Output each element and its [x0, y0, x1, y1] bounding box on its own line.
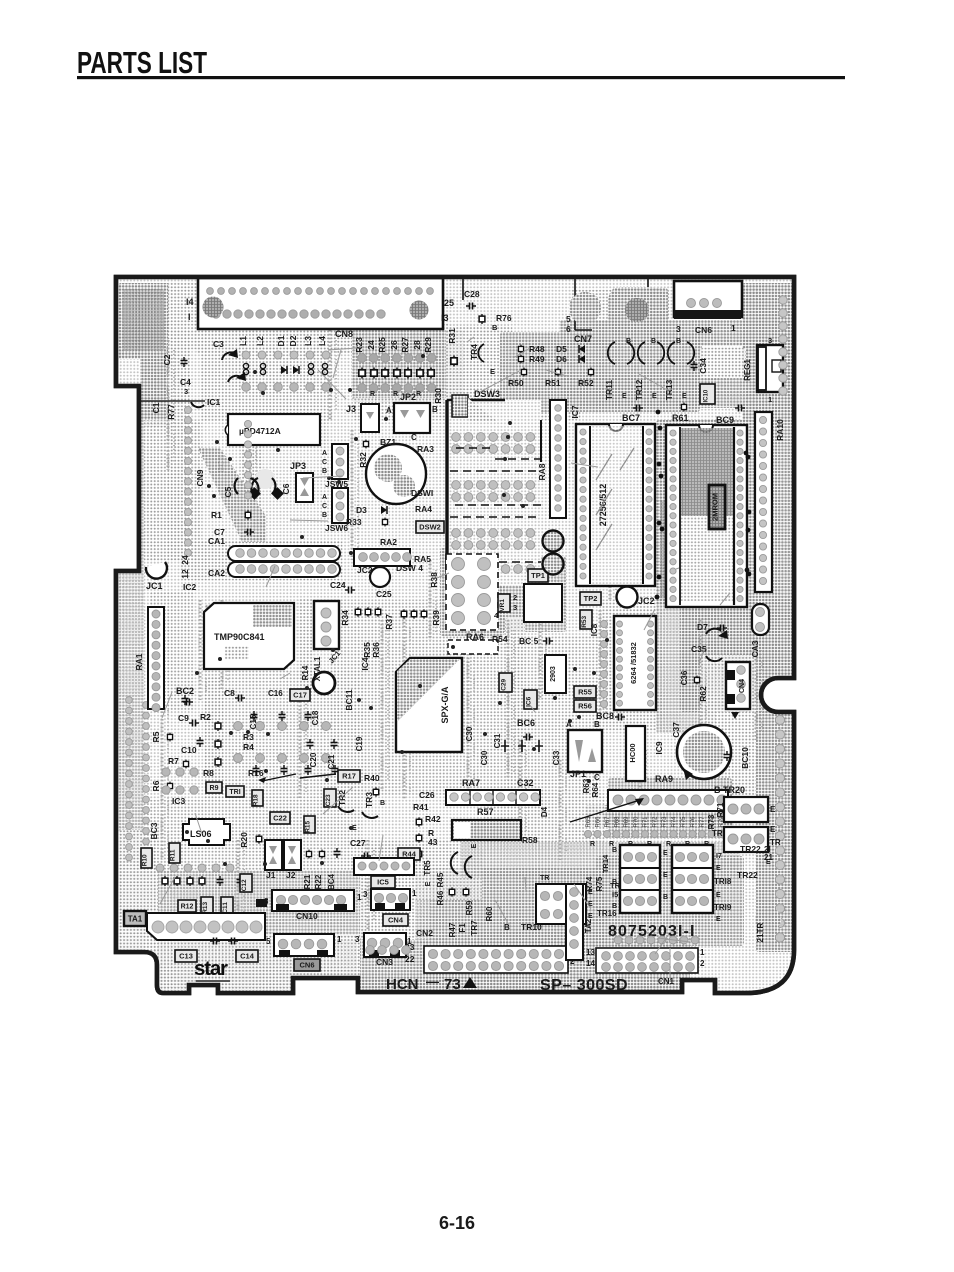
svg-text:DSW2: DSW2: [419, 523, 441, 532]
svg-text:R54: R54: [492, 634, 508, 644]
svg-text:TR22: TR22: [740, 844, 761, 854]
svg-text:RA1: RA1: [134, 653, 144, 670]
svg-text:R41: R41: [413, 802, 429, 812]
svg-text:3: 3: [513, 603, 517, 612]
svg-text:TRI9: TRI9: [714, 903, 732, 912]
svg-text:C12: C12: [241, 879, 248, 891]
svg-text:2MROM: 2MROM: [711, 493, 720, 521]
svg-text:TR3: TR3: [364, 792, 374, 808]
svg-text:2: 2: [513, 593, 517, 602]
svg-text:R70: R70: [634, 816, 640, 828]
svg-text:TR7: TR7: [470, 920, 479, 936]
svg-text:C21: C21: [327, 754, 336, 769]
svg-text:RA4: RA4: [415, 504, 432, 514]
svg-text:21: 21: [756, 933, 765, 942]
svg-text:J2: J2: [286, 870, 296, 880]
svg-text:B: B: [676, 338, 681, 345]
svg-text:D4: D4: [540, 806, 549, 817]
svg-text:L2: L2: [255, 336, 265, 346]
svg-text:E: E: [471, 843, 478, 848]
svg-text:22: 22: [405, 954, 415, 964]
svg-text:R46: R46: [436, 890, 445, 905]
svg-text:BC11: BC11: [344, 689, 354, 711]
svg-text:JP1: JP1: [570, 769, 586, 779]
svg-text:E: E: [652, 393, 657, 400]
svg-text:R25: R25: [377, 337, 387, 353]
svg-text:C: C: [594, 773, 600, 782]
svg-text:R21: R21: [303, 874, 312, 889]
svg-text:C34: C34: [698, 358, 708, 374]
svg-text:C: C: [322, 459, 327, 466]
svg-text:6-16: 6-16: [439, 1213, 475, 1233]
svg-text:J3: J3: [346, 404, 356, 414]
svg-text:JSW6: JSW6: [325, 523, 348, 533]
svg-text:R: R: [393, 391, 398, 398]
svg-text:2: 2: [700, 959, 705, 968]
svg-text:R39: R39: [431, 610, 441, 626]
svg-text:R75: R75: [681, 816, 687, 828]
svg-text:26: 26: [389, 340, 399, 350]
svg-text:C14: C14: [240, 952, 255, 961]
svg-text:TR2: TR2: [337, 790, 347, 806]
svg-text:E: E: [716, 892, 721, 899]
svg-text:E: E: [663, 850, 668, 857]
svg-text:R29: R29: [423, 337, 433, 353]
svg-text:R33: R33: [346, 517, 362, 527]
svg-text:JP2: JP2: [400, 392, 416, 402]
svg-text:R8: R8: [203, 768, 214, 778]
svg-text:PARTS LIST: PARTS LIST: [77, 45, 207, 80]
svg-text:R69: R69: [624, 816, 630, 828]
svg-text:TR22: TR22: [737, 870, 758, 880]
svg-text:B: B: [380, 800, 385, 807]
svg-text:C23: C23: [325, 794, 332, 806]
svg-text:C1: C1: [151, 402, 161, 413]
svg-text:R57: R57: [477, 807, 494, 817]
svg-text:2903: 2903: [550, 666, 557, 682]
svg-text:RA2: RA2: [380, 537, 397, 547]
svg-text:E: E: [770, 825, 776, 834]
svg-text:1: 1: [412, 889, 417, 898]
svg-text:R66: R66: [596, 816, 602, 828]
svg-text:IC10: IC10: [704, 389, 710, 402]
svg-text:1: 1: [357, 893, 362, 902]
svg-text:R23: R23: [354, 337, 364, 353]
svg-text:A: A: [386, 406, 392, 415]
svg-text:1: 1: [731, 323, 736, 333]
svg-text:R32: R32: [358, 452, 368, 468]
svg-text:B: B: [322, 468, 327, 475]
svg-text:C4: C4: [180, 377, 191, 387]
svg-text:R64: R64: [591, 782, 600, 797]
svg-text:D1: D1: [276, 335, 286, 346]
svg-text:E: E: [588, 901, 593, 908]
svg-text:TMP90C841: TMP90C841: [214, 632, 265, 642]
svg-text:CN7: CN7: [574, 334, 592, 344]
svg-text:R31: R31: [447, 328, 457, 344]
svg-text:C16: C16: [268, 689, 283, 698]
svg-text:R14: R14: [301, 665, 310, 680]
svg-text:C2: C2: [162, 354, 172, 365]
svg-text:R6: R6: [151, 780, 161, 791]
svg-text:R: R: [590, 841, 595, 848]
svg-text:JP3: JP3: [290, 461, 306, 471]
svg-text:E: E: [622, 393, 627, 400]
svg-text:B: B: [651, 338, 656, 345]
svg-text:C20: C20: [309, 752, 318, 767]
svg-text:B: B: [626, 338, 631, 345]
svg-text:3: 3: [676, 324, 681, 334]
svg-text:BC9: BC9: [716, 415, 734, 425]
svg-text:B: B: [322, 512, 327, 519]
svg-text:R65: R65: [586, 816, 592, 828]
svg-text:RA10: RA10: [775, 419, 785, 441]
svg-text:E: E: [716, 865, 721, 872]
svg-text:R37: R37: [384, 614, 394, 630]
svg-text:R7: R7: [168, 756, 179, 766]
svg-text:3: 3: [768, 336, 772, 345]
svg-text:R34: R34: [340, 610, 350, 626]
svg-text:D5: D5: [556, 344, 567, 354]
svg-text:E: E: [682, 393, 687, 400]
svg-text:B: B: [612, 847, 617, 854]
svg-text:R: R: [666, 841, 671, 848]
svg-text:R71: R71: [643, 816, 649, 828]
svg-text:R67: R67: [605, 816, 611, 828]
svg-text:14: 14: [586, 959, 595, 968]
svg-text:3: 3: [363, 890, 368, 899]
svg-text:CN2: CN2: [416, 928, 433, 938]
svg-text:R1: R1: [211, 510, 222, 520]
svg-text:R: R: [416, 391, 421, 398]
svg-text:R: R: [370, 391, 375, 398]
svg-text:SPX-G/A: SPX-G/A: [440, 686, 450, 724]
svg-text:R38: R38: [429, 572, 439, 588]
svg-text:CN6: CN6: [299, 961, 314, 970]
svg-text:TR5: TR5: [423, 860, 432, 876]
svg-text:C30: C30: [480, 750, 489, 765]
svg-text:IC2: IC2: [183, 582, 197, 592]
svg-text:R5: R5: [151, 731, 161, 742]
svg-text:I7: I7: [716, 853, 722, 860]
svg-text:BC7: BC7: [622, 413, 640, 423]
svg-text:R76: R76: [691, 816, 697, 828]
svg-text:43: 43: [428, 837, 438, 847]
svg-text:C: C: [322, 503, 327, 510]
svg-text:6: 6: [566, 324, 571, 334]
svg-text:TRI: TRI: [229, 789, 240, 796]
svg-text:R58: R58: [522, 835, 538, 845]
svg-text:C36: C36: [680, 670, 689, 685]
svg-text:1: 1: [768, 395, 772, 404]
svg-text:IC1: IC1: [207, 397, 221, 407]
svg-text:R45: R45: [436, 872, 445, 887]
svg-text:D6: D6: [556, 354, 567, 364]
svg-text:R59: R59: [465, 900, 474, 915]
svg-text:R73: R73: [662, 816, 668, 828]
svg-text:RA9: RA9: [655, 774, 673, 784]
svg-text:TR: TR: [756, 922, 765, 933]
svg-text:R30: R30: [433, 388, 443, 404]
svg-text:R2: R2: [200, 712, 211, 722]
svg-text:IC4: IC4: [360, 657, 370, 671]
svg-text:L1: L1: [238, 336, 248, 346]
svg-text:TR12: TR12: [634, 379, 644, 400]
svg-text:C25: C25: [376, 589, 392, 599]
svg-text:CA2: CA2: [208, 568, 225, 578]
svg-text:CN10: CN10: [296, 911, 318, 921]
svg-text:E: E: [770, 805, 776, 814]
svg-text:C18: C18: [311, 710, 320, 725]
svg-text:R72: R72: [653, 816, 659, 828]
svg-text:C3: C3: [213, 339, 224, 349]
svg-text:C10: C10: [181, 745, 197, 755]
svg-text:C17: C17: [293, 691, 307, 700]
svg-text:R18: R18: [253, 794, 260, 806]
svg-text:B: B: [432, 405, 438, 414]
svg-text:R73: R73: [707, 814, 716, 829]
svg-text:TR11: TR11: [604, 380, 614, 401]
svg-text:B TR20: B TR20: [714, 785, 745, 795]
svg-text:E: E: [663, 872, 668, 879]
svg-text:—: —: [426, 974, 439, 989]
svg-text:BZ1: BZ1: [380, 437, 396, 447]
svg-text:R76: R76: [496, 313, 512, 323]
svg-text:I: I: [188, 312, 191, 322]
svg-text:R75: R75: [595, 876, 604, 891]
svg-text:6264 /51832: 6264 /51832: [629, 642, 638, 684]
svg-text:RA7: RA7: [462, 778, 480, 788]
svg-text:C13: C13: [179, 952, 193, 961]
svg-text:CN4: CN4: [739, 679, 746, 693]
svg-text:BC6: BC6: [517, 718, 535, 728]
svg-text:R77: R77: [166, 404, 176, 420]
svg-text:D3: D3: [356, 505, 367, 515]
svg-text:27256/512: 27256/512: [598, 484, 608, 527]
svg-text:JC1: JC1: [146, 581, 163, 591]
svg-text:IC3: IC3: [172, 796, 186, 806]
svg-text:C26: C26: [419, 790, 435, 800]
svg-text:RA3: RA3: [417, 444, 434, 454]
svg-text:star: star: [194, 957, 228, 980]
svg-text:C31: C31: [493, 733, 502, 748]
svg-text:TR: TR: [610, 881, 621, 890]
svg-text:R60: R60: [485, 906, 494, 921]
svg-text:IC6: IC6: [526, 696, 533, 707]
svg-text:CN4: CN4: [388, 916, 404, 925]
svg-text:TR: TR: [770, 838, 781, 847]
svg-text:R68: R68: [615, 816, 621, 828]
svg-text:R17: R17: [342, 772, 356, 781]
svg-text:TP2: TP2: [584, 594, 598, 603]
svg-text:XTAL1: XTAL1: [313, 656, 322, 681]
svg-text:C15: C15: [249, 714, 258, 729]
svg-text:I5: I5: [612, 890, 618, 899]
svg-text:E: E: [490, 367, 495, 376]
svg-text:L4: L4: [317, 336, 327, 346]
svg-text:R56: R56: [578, 702, 592, 711]
svg-text:R9: R9: [210, 785, 219, 792]
svg-text:JC2: JC2: [357, 565, 373, 575]
svg-text:R55: R55: [578, 688, 592, 697]
svg-text:CN1: CN1: [658, 977, 675, 986]
svg-text:R47: R47: [448, 922, 457, 937]
svg-text:3: 3: [355, 935, 360, 944]
svg-text:C30: C30: [465, 726, 474, 741]
svg-text:3: 3: [184, 387, 188, 396]
svg-text:C37: C37: [671, 722, 681, 738]
svg-text:C: C: [411, 433, 417, 442]
svg-text:D2: D2: [288, 335, 298, 346]
svg-text:BC2: BC2: [176, 686, 194, 696]
svg-text:TR: TR: [540, 875, 549, 882]
svg-text:C19: C19: [355, 736, 364, 751]
svg-text:R36: R36: [371, 642, 381, 658]
svg-text:R42: R42: [425, 814, 441, 824]
svg-text:A: A: [322, 450, 327, 457]
svg-text:13: 13: [586, 948, 595, 957]
svg-text:5: 5: [566, 314, 571, 324]
svg-text:R50: R50: [508, 378, 524, 388]
svg-text:IC5: IC5: [377, 878, 389, 887]
svg-text:R48: R48: [529, 344, 545, 354]
svg-text:BC10: BC10: [740, 747, 750, 769]
svg-text:R11: R11: [170, 849, 177, 861]
svg-text:TR13: TR13: [664, 379, 674, 400]
svg-text:TRI8: TRI8: [714, 877, 732, 886]
svg-text:C33: C33: [552, 750, 561, 765]
svg-text:E: E: [766, 859, 771, 866]
svg-text:R12: R12: [181, 904, 194, 911]
svg-text:R22: R22: [314, 874, 323, 889]
svg-text:CN9: CN9: [195, 469, 205, 486]
svg-text:IC7: IC7: [570, 405, 580, 419]
svg-text:IC8: IC8: [590, 623, 599, 636]
svg-text:5: 5: [266, 937, 271, 946]
svg-text:BC4: BC4: [327, 873, 336, 890]
svg-text:JC2: JC2: [638, 596, 655, 606]
svg-text:R62: R62: [698, 686, 708, 702]
svg-text:TR14: TR14: [601, 854, 610, 873]
svg-text:C32: C32: [517, 778, 534, 788]
svg-text:8: 8: [264, 897, 269, 906]
svg-text:E: E: [716, 916, 721, 923]
svg-text:CN8: CN8: [335, 329, 353, 339]
svg-text:VR1: VR1: [499, 599, 506, 612]
svg-text:B: B: [594, 720, 600, 729]
svg-text:C8: C8: [224, 688, 235, 698]
svg-text:RA8: RA8: [537, 463, 547, 480]
svg-text:J1: J1: [266, 870, 276, 880]
svg-text:R74: R74: [585, 876, 594, 891]
svg-text:CN3: CN3: [376, 957, 393, 967]
svg-text:L3: L3: [303, 336, 313, 346]
svg-text:C28: C28: [464, 289, 480, 299]
svg-text:HC00: HC00: [628, 743, 637, 762]
svg-text:12: 12: [180, 569, 190, 579]
svg-text:C5: C5: [223, 486, 233, 497]
svg-text:R51: R51: [545, 378, 561, 388]
svg-text:C29: C29: [501, 678, 508, 690]
svg-text:25: 25: [444, 298, 454, 308]
svg-text:TA2: TA2: [584, 918, 593, 933]
svg-text:2I: 2I: [764, 845, 771, 854]
svg-text:TA1: TA1: [128, 914, 143, 923]
svg-text:C9: C9: [178, 713, 189, 723]
svg-text:R40: R40: [364, 773, 380, 783]
svg-text:R10: R10: [142, 854, 149, 866]
svg-text:R52: R52: [578, 378, 594, 388]
svg-text:R15: R15: [305, 820, 312, 832]
svg-text:IC9: IC9: [654, 741, 664, 755]
svg-text:R49: R49: [529, 354, 545, 364]
svg-text:DSW3: DSW3: [474, 389, 500, 399]
svg-text:TP1: TP1: [531, 571, 545, 580]
svg-text:DSW 4: DSW 4: [396, 563, 423, 573]
svg-text:DSWI: DSWI: [411, 488, 433, 498]
svg-text:C11: C11: [222, 902, 229, 914]
svg-text:R77: R77: [700, 816, 706, 828]
svg-text:R74: R74: [672, 816, 678, 828]
svg-text:TR16: TR16: [597, 909, 617, 918]
svg-text:CA3: CA3: [750, 640, 760, 657]
svg-text:BC 5: BC 5: [519, 636, 539, 646]
svg-text:CA1: CA1: [208, 536, 225, 546]
svg-text:BC3: BC3: [149, 822, 159, 839]
svg-text:I3: I3: [441, 313, 449, 323]
svg-text:D7: D7: [697, 622, 708, 632]
svg-text:B: B: [492, 323, 498, 332]
svg-text:1: 1: [337, 935, 342, 944]
svg-text:F1: F1: [458, 923, 467, 933]
svg-text:24: 24: [366, 340, 376, 350]
svg-text:TR: TR: [712, 829, 723, 838]
svg-text:TR4: TR4: [469, 344, 479, 360]
svg-text:24: 24: [180, 555, 190, 565]
svg-text:C27: C27: [350, 838, 366, 848]
svg-text:REG1: REG1: [743, 359, 752, 381]
svg-text:E: E: [425, 881, 432, 886]
svg-text:28: 28: [412, 340, 422, 350]
svg-text:R20: R20: [239, 832, 249, 848]
svg-text:R53: R53: [581, 615, 588, 627]
svg-text:R27: R27: [400, 337, 410, 353]
svg-text:R61: R61: [672, 413, 689, 423]
svg-text:1: 1: [700, 948, 705, 957]
svg-text:A: A: [322, 494, 327, 501]
svg-text:C22: C22: [273, 814, 287, 823]
svg-text:RA6: RA6: [466, 632, 484, 642]
svg-text:R4: R4: [243, 742, 254, 752]
svg-text:I4: I4: [186, 297, 194, 307]
svg-text:R13: R13: [202, 901, 209, 913]
svg-text:B: B: [663, 894, 668, 901]
svg-text:CN6: CN6: [695, 325, 712, 335]
svg-text:C24: C24: [330, 580, 346, 590]
